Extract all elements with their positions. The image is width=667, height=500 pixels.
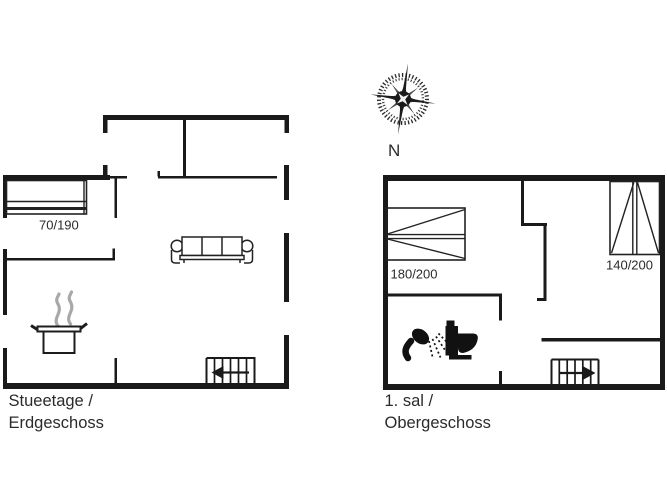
north-label: N [388, 141, 400, 160]
wall-segment [284, 165, 289, 200]
wall-segment [3, 175, 110, 180]
wall-segment [521, 181, 524, 226]
wall-segment [660, 175, 665, 390]
wall-segment [3, 348, 7, 389]
wall-segment [284, 335, 289, 389]
bed-size-label: 70/190 [39, 218, 79, 233]
floorplan-drawing: 70/190 [0, 0, 667, 500]
stairs-icon [552, 360, 599, 386]
sofa-arm [171, 240, 183, 252]
wall-segment [103, 115, 108, 133]
wall-segment [158, 176, 277, 179]
wall-segment [544, 223, 547, 301]
wall-segment [285, 115, 290, 133]
wall-segment [521, 223, 547, 226]
wall-segment [183, 118, 186, 178]
floor-title-line2: Obergeschoss [385, 414, 491, 432]
wall-segment [6, 258, 115, 261]
wall-segment [103, 165, 108, 176]
sofa-icon [171, 237, 253, 263]
wall-segment [103, 115, 289, 120]
pot-body [44, 332, 75, 354]
sofa-seat-front [180, 256, 244, 260]
floor-title-line1: Stueetage / [9, 392, 94, 410]
wall-segment [158, 171, 161, 177]
sofa-cushions [182, 237, 242, 256]
wall-segment [542, 338, 666, 342]
floor-title-line2: Erdgeschoss [9, 414, 104, 432]
sofa-arm [241, 240, 253, 252]
bed-size-label: 180/200 [391, 267, 438, 282]
toilet-base [449, 355, 472, 360]
wall-segment [284, 233, 289, 302]
wall-segment [388, 294, 502, 297]
wall-segment [115, 358, 118, 384]
floor-title-line1: 1. sal / [385, 392, 434, 410]
wall-segment [383, 384, 665, 390]
bed-size-label: 140/200 [606, 258, 653, 273]
wall-segment [537, 298, 544, 301]
wall-segment [110, 176, 127, 179]
floorplan-canvas: 70/190 [0, 0, 667, 500]
toilet-tank [446, 326, 459, 356]
wall-segment [499, 294, 502, 321]
wall-segment [115, 177, 118, 218]
wall-segment [113, 249, 116, 259]
wall-segment [499, 371, 502, 384]
wall-segment [383, 175, 665, 181]
